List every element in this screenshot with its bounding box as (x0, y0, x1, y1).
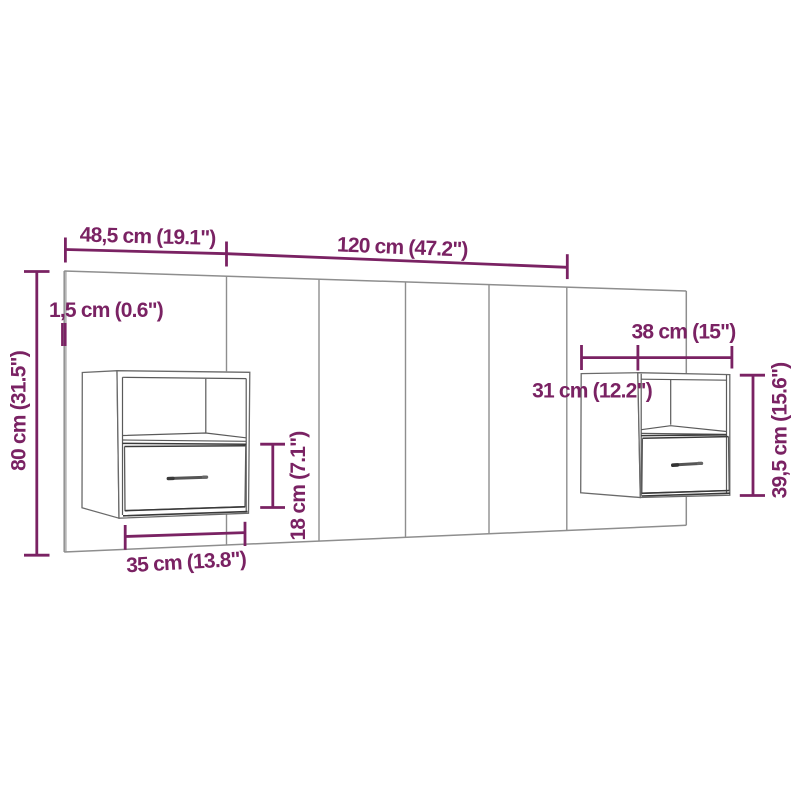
svg-text:80 cm (31.5"): 80 cm (31.5") (8, 351, 31, 471)
svg-text:38 cm (15"): 38 cm (15") (632, 321, 736, 344)
svg-text:1,5 cm (0.6"): 1,5 cm (0.6") (49, 299, 163, 322)
svg-text:18 cm (7.1"): 18 cm (7.1") (287, 432, 310, 541)
svg-text:48,5 cm (19.1"): 48,5 cm (19.1") (80, 223, 216, 250)
svg-text:39,5 cm (15.6"): 39,5 cm (15.6") (769, 363, 792, 499)
svg-text:31 cm (12.2"): 31 cm (12.2") (532, 380, 652, 403)
